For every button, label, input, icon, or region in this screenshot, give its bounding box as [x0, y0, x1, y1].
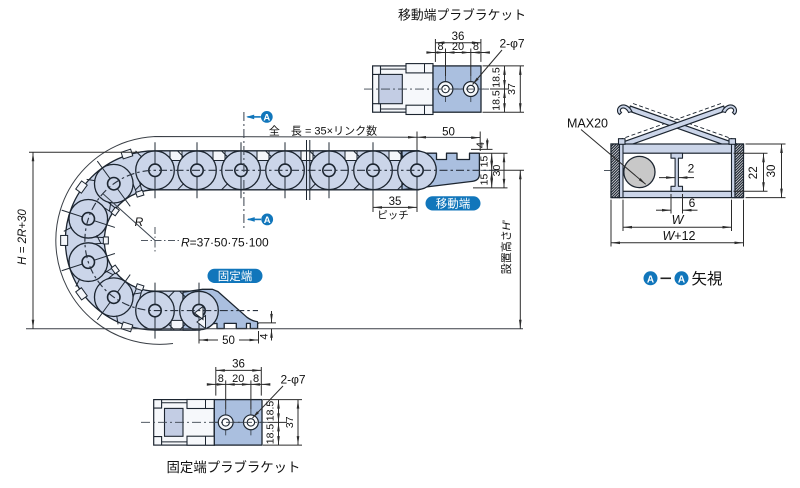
svg-text:8: 8 — [437, 41, 443, 53]
svg-text:6: 6 — [689, 196, 696, 210]
svg-text:20: 20 — [232, 373, 244, 385]
svg-text:移動端: 移動端 — [436, 197, 471, 211]
svg-text:35: 35 — [389, 196, 402, 208]
svg-text:A: A — [647, 274, 654, 285]
svg-text:15: 15 — [479, 156, 491, 168]
svg-text:8: 8 — [218, 373, 224, 385]
svg-text:8: 8 — [253, 373, 259, 385]
svg-text:30: 30 — [766, 165, 778, 178]
svg-text:37: 37 — [506, 83, 518, 95]
svg-text:22: 22 — [748, 166, 760, 179]
svg-text:18.5: 18.5 — [265, 424, 277, 445]
svg-text:移動端プラブラケット: 移動端プラブラケット — [398, 8, 526, 23]
svg-text:固定端: 固定端 — [218, 269, 253, 283]
svg-text:18.5: 18.5 — [265, 401, 277, 422]
svg-text:2: 2 — [688, 162, 695, 176]
svg-text:W: W — [672, 213, 685, 227]
svg-text:R=37·50·75·100: R=37·50·75·100 — [181, 236, 269, 250]
svg-text:ピッチ: ピッチ — [377, 210, 409, 222]
svg-text:8: 8 — [473, 41, 479, 53]
svg-text:MAX20: MAX20 — [567, 117, 608, 131]
svg-text:A: A — [678, 274, 685, 285]
svg-text:20: 20 — [452, 41, 464, 53]
svg-text:H = 2R+30: H = 2R+30 — [17, 209, 29, 265]
svg-text:全 長 = 35×リンク数: 全 長 = 35×リンク数 — [269, 124, 377, 138]
svg-text:4: 4 — [475, 142, 487, 148]
svg-text:R: R — [135, 215, 144, 229]
svg-text:50: 50 — [222, 335, 235, 347]
svg-text:設置高さH’: 設置高さH’ — [499, 220, 513, 274]
svg-text:50: 50 — [442, 126, 455, 138]
svg-text:18.5: 18.5 — [491, 90, 503, 111]
svg-text:36: 36 — [232, 359, 245, 371]
svg-text:37: 37 — [284, 416, 296, 428]
svg-text:A: A — [264, 215, 271, 226]
svg-text:固定端プラブラケット: 固定端プラブラケット — [167, 459, 301, 475]
svg-text:4: 4 — [259, 333, 271, 339]
svg-text:18.5: 18.5 — [491, 67, 503, 88]
svg-text:15: 15 — [479, 174, 491, 186]
svg-text:矢視: 矢視 — [691, 270, 722, 288]
svg-text:W+12: W+12 — [662, 229, 695, 243]
svg-text:2-φ7: 2-φ7 — [280, 373, 305, 387]
svg-text:2-φ7: 2-φ7 — [499, 37, 524, 51]
svg-text:A: A — [263, 113, 270, 124]
